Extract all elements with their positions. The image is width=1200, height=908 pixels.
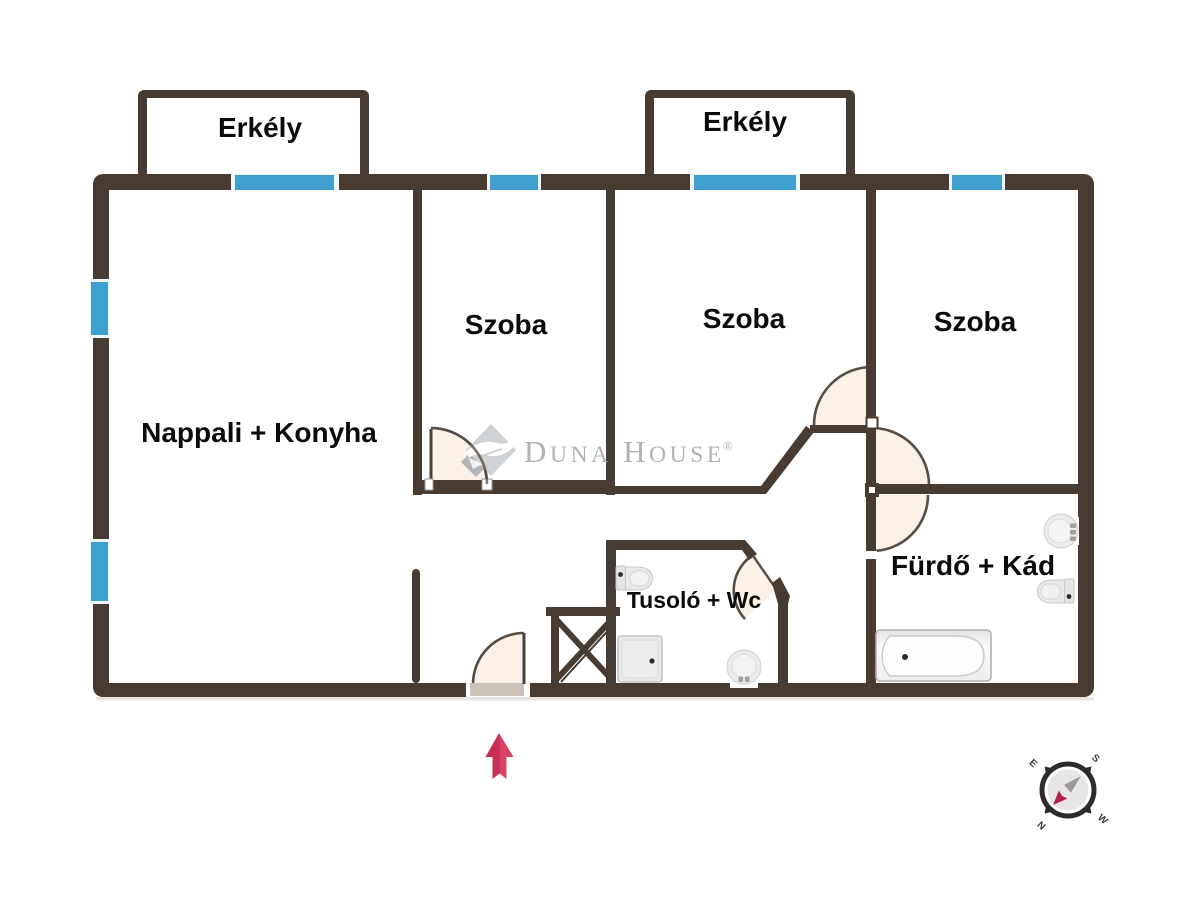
- svg-text:Szoba: Szoba: [934, 306, 1017, 337]
- svg-text:Tusoló + Wc: Tusoló + Wc: [627, 587, 762, 613]
- svg-text:Fürdő + Kád: Fürdő + Kád: [891, 550, 1055, 581]
- svg-text:Szoba: Szoba: [703, 303, 786, 334]
- svg-text:Erkély: Erkély: [703, 106, 787, 137]
- svg-text:Szoba: Szoba: [465, 309, 548, 340]
- svg-text:Nappali + Konyha: Nappali + Konyha: [141, 417, 377, 448]
- svg-text:Erkély: Erkély: [218, 112, 302, 143]
